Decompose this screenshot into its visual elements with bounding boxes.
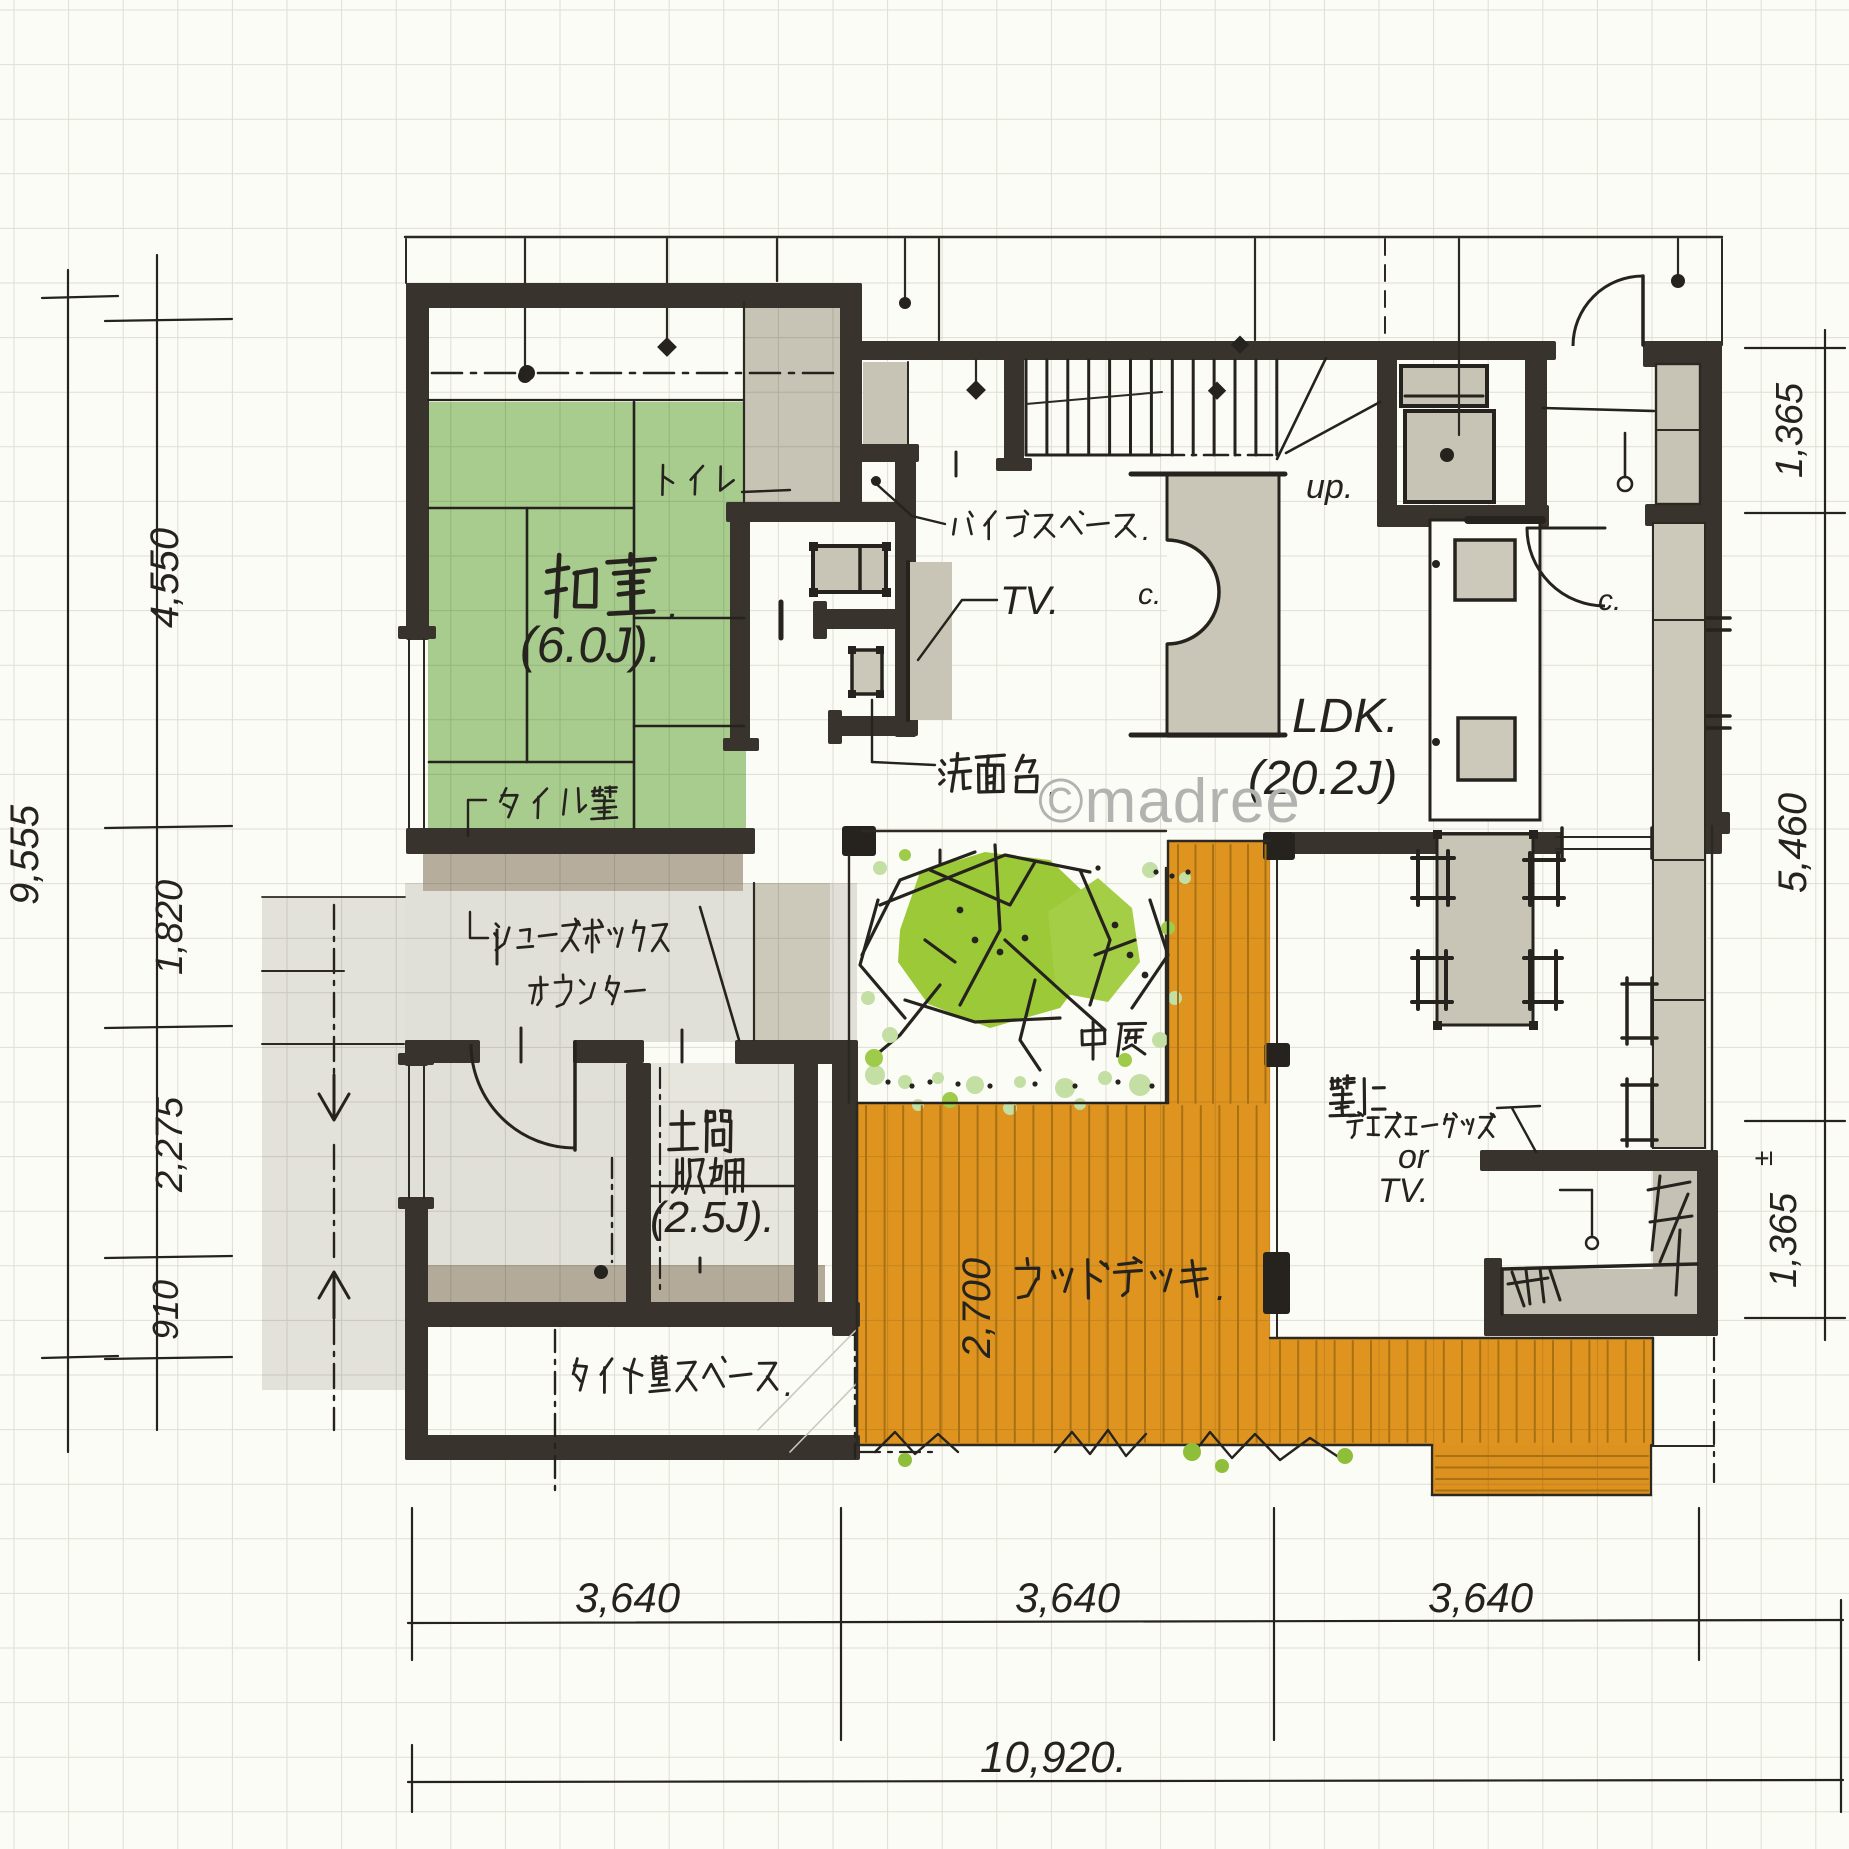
svg-text:LDK.: LDK. [1292, 690, 1399, 743]
svg-text:.: . [668, 583, 679, 627]
svg-text:2,275: 2,275 [149, 1096, 191, 1193]
svg-text:(2.5J).: (2.5J). [650, 1193, 775, 1242]
svg-text:9,555: 9,555 [3, 804, 47, 905]
svg-text:910: 910 [145, 1280, 186, 1340]
svg-text:1,365: 1,365 [1763, 1192, 1805, 1288]
svg-text:1,820: 1,820 [149, 880, 191, 975]
svg-text:5,460: 5,460 [1771, 793, 1815, 893]
svg-text:TV.: TV. [1000, 579, 1059, 623]
svg-text:1,365: 1,365 [1769, 382, 1811, 478]
svg-text:c.: c. [1138, 578, 1161, 611]
svg-text:c.: c. [1598, 584, 1621, 617]
svg-text:or: or [1398, 1138, 1430, 1176]
svg-text:.: . [784, 1366, 793, 1404]
svg-text:2,700: 2,700 [955, 1258, 999, 1359]
svg-text:10,920.: 10,920. [980, 1733, 1127, 1782]
svg-text:4,550: 4,550 [143, 528, 187, 628]
svg-text:.: . [1216, 1267, 1226, 1308]
svg-text:3,640: 3,640 [1428, 1574, 1534, 1621]
svg-text:±: ± [1747, 1151, 1778, 1166]
svg-text:up.: up. [1306, 468, 1353, 506]
svg-text:.: . [1142, 514, 1150, 547]
svg-text:©madree: ©madree [1038, 767, 1301, 836]
svg-text:3,640: 3,640 [575, 1574, 681, 1621]
svg-text:(6.0J).: (6.0J). [520, 617, 662, 673]
svg-text:TV.: TV. [1378, 1172, 1428, 1210]
svg-text:3,640: 3,640 [1015, 1574, 1121, 1621]
